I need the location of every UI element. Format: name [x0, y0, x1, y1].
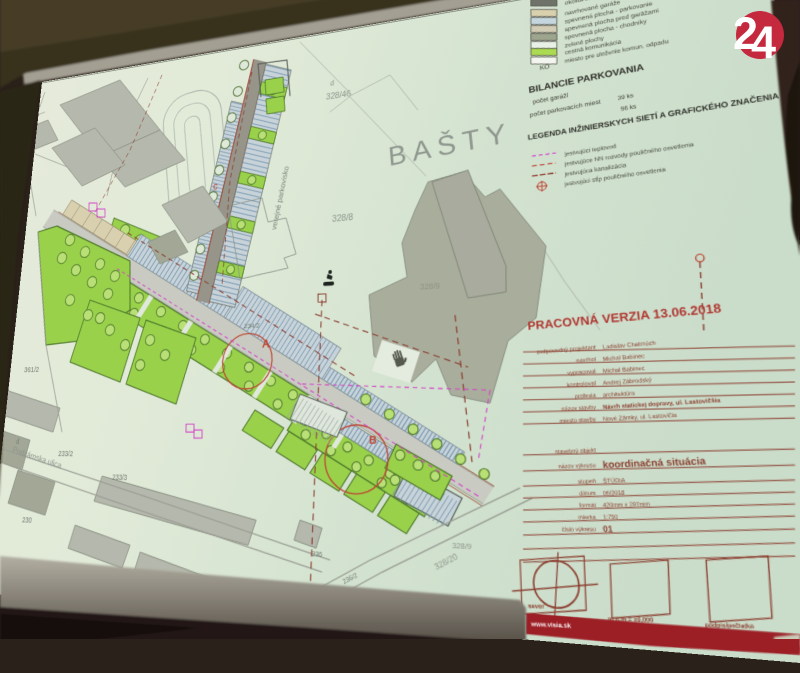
- svg-text:B: B: [369, 433, 377, 447]
- svg-text:sever: sever: [528, 603, 546, 611]
- svg-text:A: A: [262, 338, 270, 351]
- svg-text:01: 01: [602, 525, 613, 536]
- svg-text:233/3: 233/3: [112, 475, 128, 484]
- svg-text:328/9: 328/9: [452, 541, 472, 552]
- svg-text:236: 236: [312, 550, 323, 559]
- svg-text:mierka: mierka: [578, 514, 597, 521]
- svg-text:d: d: [330, 80, 334, 88]
- svg-text:361/2: 361/2: [24, 367, 40, 375]
- svg-text:názov výkresu: názov výkresu: [558, 462, 596, 470]
- svg-text:ŠTÚDIA: ŠTÚDIA: [602, 475, 626, 484]
- svg-text:234/2: 234/2: [244, 322, 260, 331]
- svg-text:číslo výkresu: číslo výkresu: [562, 526, 597, 534]
- svg-text:328/9: 328/9: [420, 283, 440, 293]
- svg-text:328/8: 328/8: [332, 213, 354, 224]
- svg-text:233/2: 233/2: [58, 451, 73, 459]
- svg-text:230: 230: [22, 517, 32, 526]
